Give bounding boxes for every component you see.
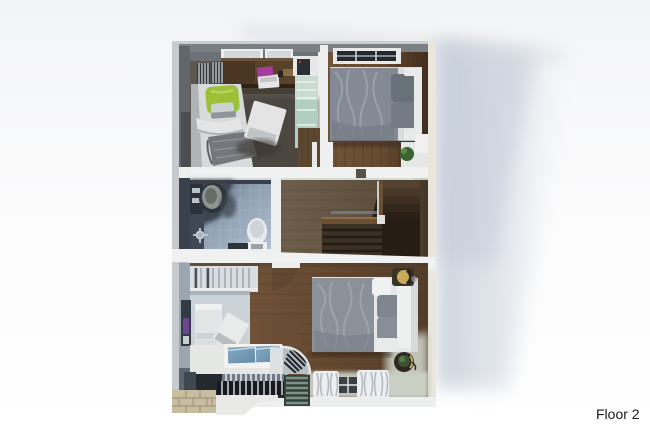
svg-text:Floor 2: Floor 2 <box>596 406 640 422</box>
